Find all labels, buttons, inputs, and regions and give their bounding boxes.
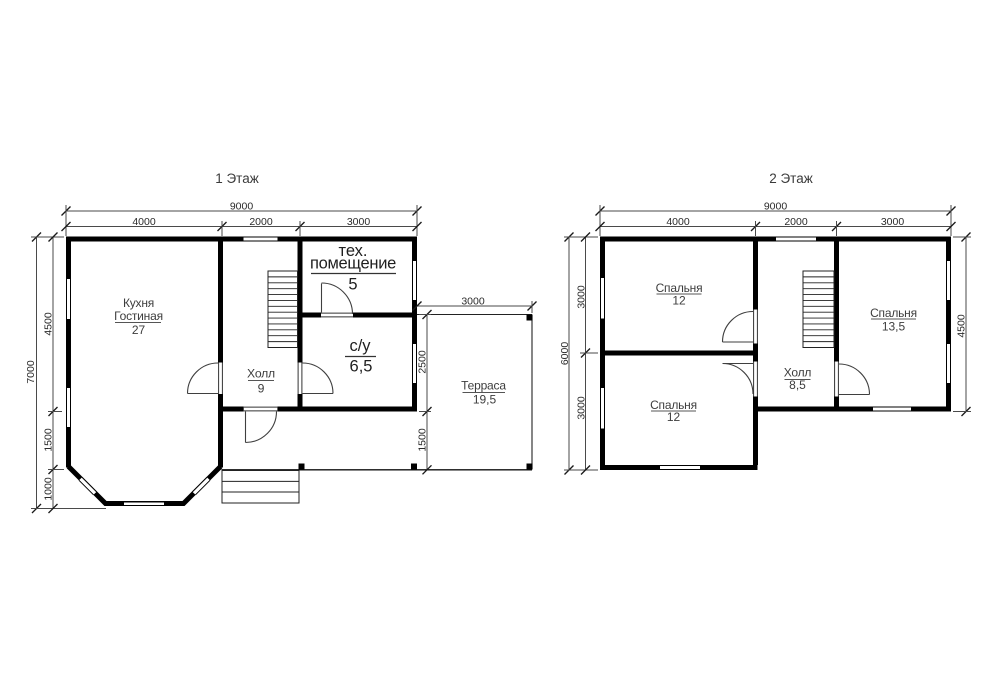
svg-text:19,5: 19,5 xyxy=(473,393,497,407)
svg-text:8,5: 8,5 xyxy=(789,378,806,392)
svg-text:9000: 9000 xyxy=(764,200,788,212)
svg-text:Терраса: Терраса xyxy=(461,379,506,393)
svg-text:4500: 4500 xyxy=(43,312,55,336)
svg-text:1500: 1500 xyxy=(417,428,429,452)
svg-text:с/у: с/у xyxy=(349,337,371,355)
svg-text:помещение: помещение xyxy=(310,255,396,273)
svg-text:6,5: 6,5 xyxy=(350,358,373,376)
svg-text:3000: 3000 xyxy=(881,216,905,228)
svg-text:2500: 2500 xyxy=(417,350,429,374)
svg-text:2000: 2000 xyxy=(249,216,273,228)
svg-text:12: 12 xyxy=(667,410,681,424)
svg-text:13,5: 13,5 xyxy=(882,320,906,334)
svg-text:3000: 3000 xyxy=(575,285,587,309)
svg-text:3000: 3000 xyxy=(461,295,485,307)
svg-text:27: 27 xyxy=(132,323,146,337)
svg-text:Холл: Холл xyxy=(247,367,275,381)
svg-text:12: 12 xyxy=(672,294,686,308)
svg-text:6000: 6000 xyxy=(559,342,571,366)
svg-text:Гостиная: Гостиная xyxy=(114,309,163,323)
svg-text:2 Этаж: 2 Этаж xyxy=(769,171,813,186)
svg-text:4000: 4000 xyxy=(132,216,156,228)
svg-text:4000: 4000 xyxy=(666,216,690,228)
svg-text:5: 5 xyxy=(348,276,357,294)
svg-text:1000: 1000 xyxy=(43,477,55,501)
svg-text:1500: 1500 xyxy=(43,428,55,452)
svg-text:4500: 4500 xyxy=(956,314,968,338)
svg-text:9: 9 xyxy=(258,382,265,396)
svg-text:9000: 9000 xyxy=(230,200,254,212)
svg-text:Кухня: Кухня xyxy=(123,296,154,310)
svg-text:2000: 2000 xyxy=(784,216,808,228)
svg-text:3000: 3000 xyxy=(575,396,587,420)
svg-text:7000: 7000 xyxy=(25,360,37,384)
svg-text:Спальня: Спальня xyxy=(870,306,917,320)
svg-text:1 Этаж: 1 Этаж xyxy=(215,171,259,186)
svg-text:3000: 3000 xyxy=(347,216,371,228)
